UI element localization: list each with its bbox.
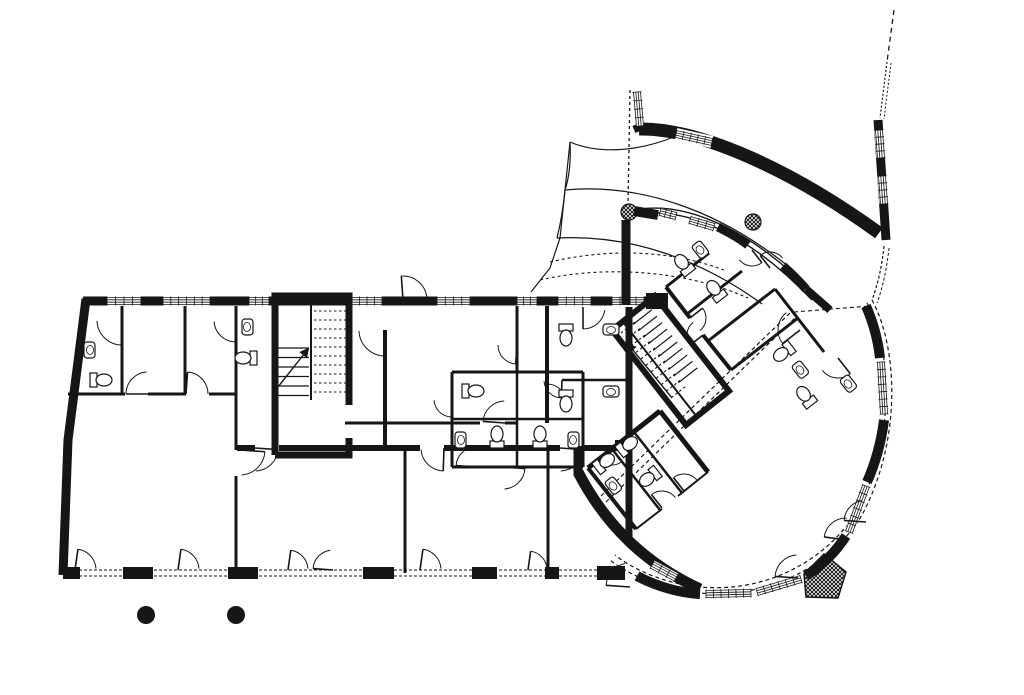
column-dot [227, 606, 245, 624]
fixtures [84, 240, 858, 495]
toilet-fixture [90, 373, 112, 387]
toilet-fixture [235, 351, 257, 365]
sink-fixture [839, 374, 858, 393]
floor-plan-drawing [0, 0, 1024, 695]
toilet-fixture [770, 340, 796, 365]
hall-curved-wall [578, 472, 700, 589]
toilet-fixture [671, 251, 696, 277]
toilet-fixture [462, 384, 484, 398]
west-wall [63, 299, 86, 575]
stairs [274, 302, 697, 401]
sink-fixture [603, 324, 619, 335]
sink-fixture [242, 319, 253, 335]
toilet-fixture [793, 383, 818, 409]
sink-fixture [791, 360, 810, 379]
floor-plan-page [0, 0, 1024, 695]
column [621, 204, 637, 220]
sink-fixture [84, 342, 95, 358]
sink-fixture [568, 432, 579, 448]
toilet-fixture [559, 324, 573, 346]
toilet-fixture [490, 426, 504, 448]
sink-fixture [603, 386, 619, 397]
column-dot [137, 606, 155, 624]
sink-fixture [455, 432, 466, 448]
columns [137, 204, 761, 624]
toilet-fixture [533, 426, 547, 448]
toilet-fixture [559, 390, 573, 412]
entrance-pier [804, 554, 846, 598]
column [745, 214, 761, 230]
